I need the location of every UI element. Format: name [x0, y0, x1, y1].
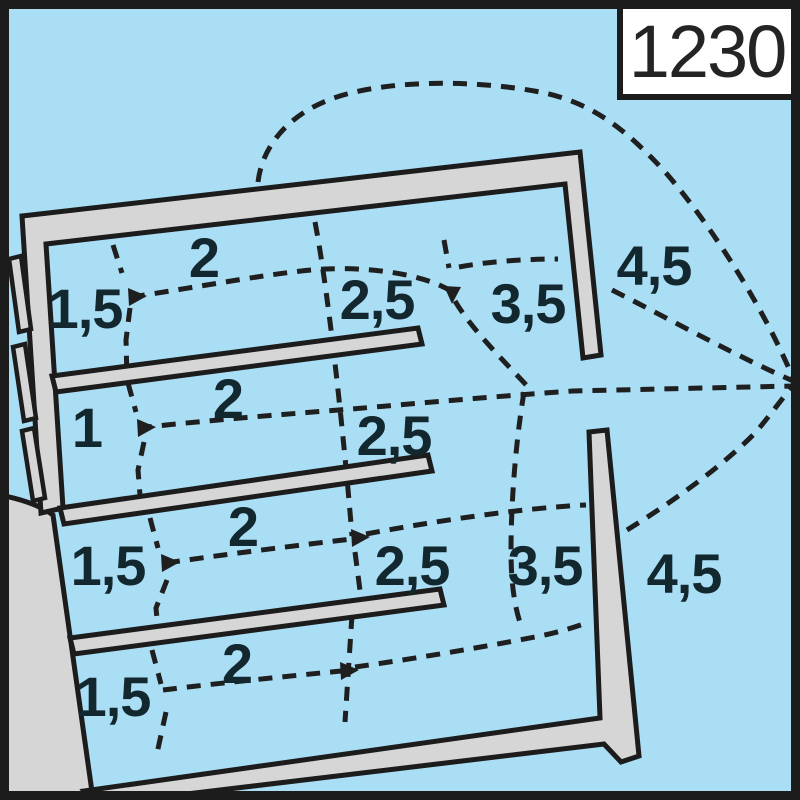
nautical-chart: 1,5 2 2,5 3,5 4,5 1 2 2,5 1,5 2 2,5 3,5 …: [0, 0, 800, 800]
depth-label: 2,5: [340, 268, 415, 331]
depth-label: 2: [228, 495, 258, 558]
marina-depth-chart: 1,5 2 2,5 3,5 4,5 1 2 2,5 1,5 2 2,5 3,5 …: [0, 0, 800, 800]
depth-label: 3,5: [491, 272, 566, 335]
depth-label: 1: [72, 396, 102, 459]
depth-label: 4,5: [647, 542, 722, 605]
depth-label: 2,5: [357, 404, 432, 467]
depth-label: 4,5: [617, 234, 692, 297]
depth-label: 1,5: [71, 534, 146, 597]
depth-label: 2: [222, 632, 252, 695]
depth-label: 2,5: [375, 534, 450, 597]
depth-label: 2: [189, 226, 219, 289]
chart-number: 1230: [629, 10, 786, 93]
depth-label: 1,5: [48, 277, 123, 340]
depth-label: 2: [213, 367, 243, 430]
chart-number-box: 1230: [620, 6, 794, 97]
depth-label: 1,5: [76, 665, 151, 728]
depth-label: 3,5: [508, 534, 583, 597]
